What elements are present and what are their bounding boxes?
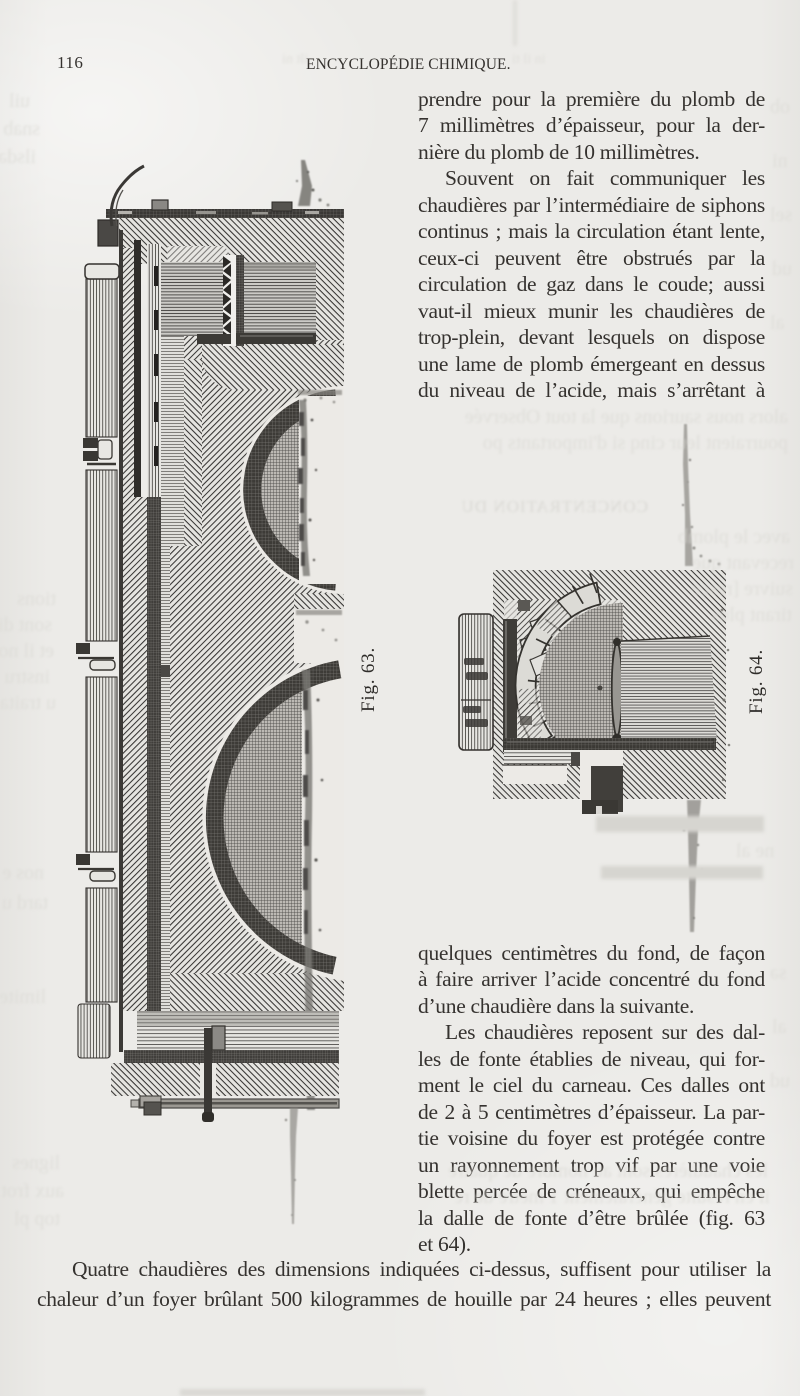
svg-text:Fig. 63.: Fig. 63. xyxy=(358,647,379,712)
svg-text:Fig. 64.: Fig. 64. xyxy=(746,649,767,714)
